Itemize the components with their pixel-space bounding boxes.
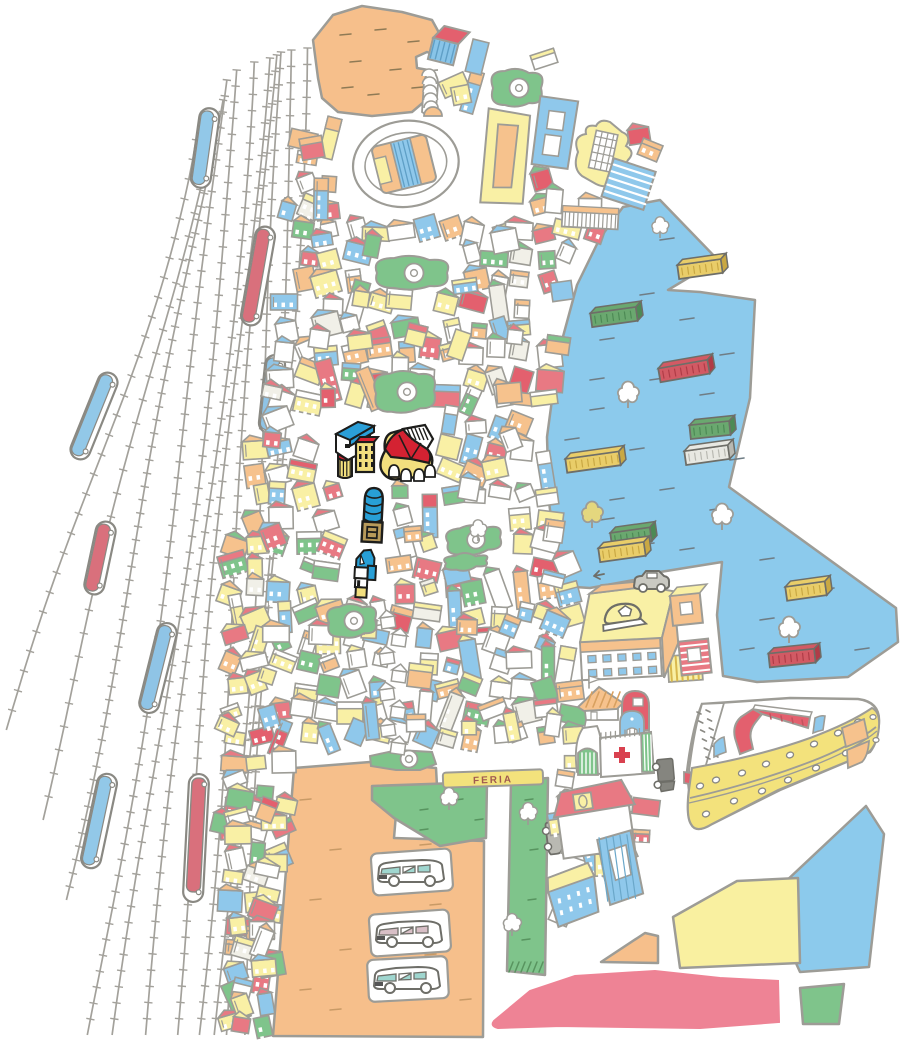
svg-text:FERIA: FERIA	[473, 774, 513, 786]
